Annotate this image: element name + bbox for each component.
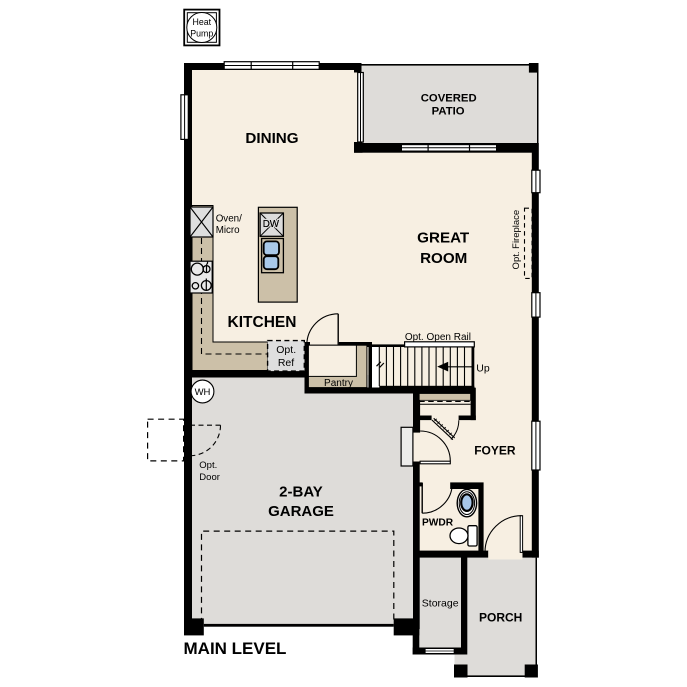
svg-text:Opt.: Opt. xyxy=(276,344,296,356)
svg-text:PWDR: PWDR xyxy=(422,517,454,528)
svg-text:Pump: Pump xyxy=(190,28,213,38)
svg-text:ROOM: ROOM xyxy=(420,250,467,267)
svg-text:Opt. Fireplace: Opt. Fireplace xyxy=(511,210,522,270)
svg-text:MAIN LEVEL: MAIN LEVEL xyxy=(184,639,287,658)
svg-text:COVERED: COVERED xyxy=(421,92,477,104)
svg-text:DW: DW xyxy=(263,219,280,230)
svg-text:GREAT: GREAT xyxy=(417,229,470,246)
svg-text:Oven/: Oven/ xyxy=(216,214,242,225)
svg-text:Up: Up xyxy=(476,362,490,374)
svg-text:Ref: Ref xyxy=(278,357,294,369)
svg-text:Heat: Heat xyxy=(193,17,212,27)
svg-text:Micro: Micro xyxy=(216,225,240,236)
svg-text:Opt. Open Rail: Opt. Open Rail xyxy=(405,332,471,343)
svg-text:Pantry: Pantry xyxy=(324,378,353,389)
svg-text:DINING: DINING xyxy=(245,130,298,147)
svg-text:FOYER: FOYER xyxy=(474,444,516,458)
svg-text:Door: Door xyxy=(199,472,220,483)
svg-text:2-BAY: 2-BAY xyxy=(279,483,323,500)
svg-text:PORCH: PORCH xyxy=(479,610,522,624)
svg-text:GARAGE: GARAGE xyxy=(268,503,334,520)
svg-text:Opt.: Opt. xyxy=(199,460,217,471)
svg-text:WH: WH xyxy=(195,387,211,398)
svg-text:PATIO: PATIO xyxy=(432,106,465,118)
svg-text:Storage: Storage xyxy=(422,598,459,610)
svg-text:KITCHEN: KITCHEN xyxy=(228,314,297,331)
